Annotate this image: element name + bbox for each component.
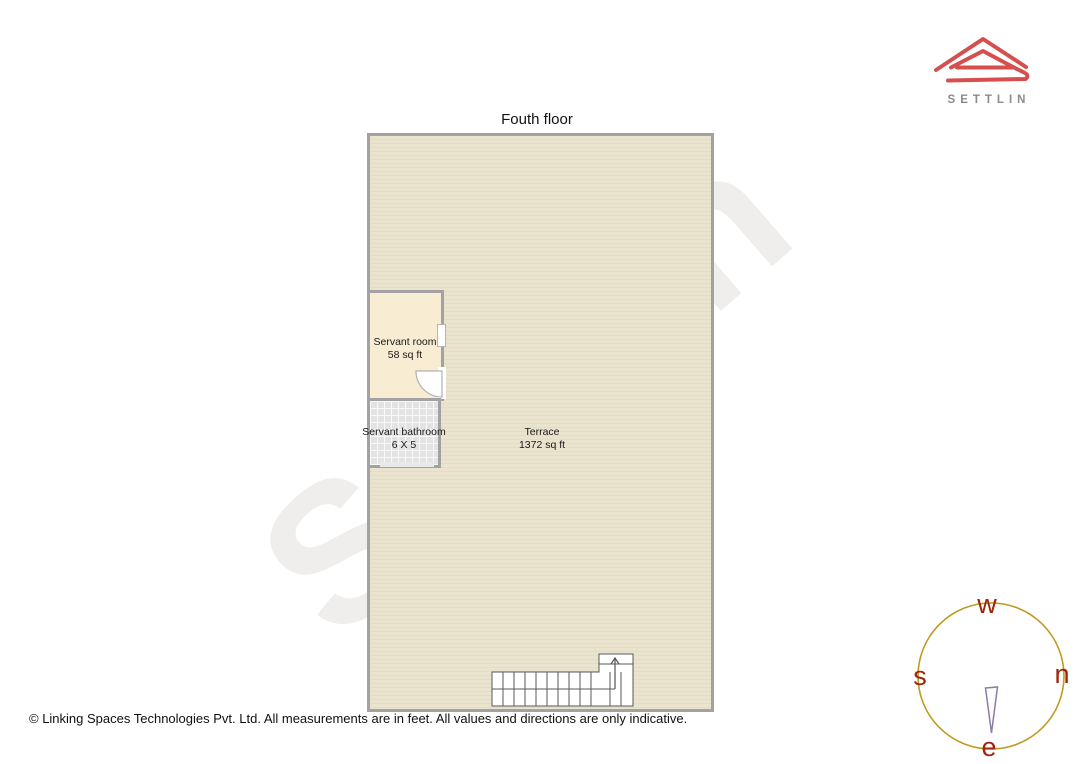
copyright-disclaimer: © Linking Spaces Technologies Pvt. Ltd. … bbox=[29, 711, 687, 726]
compass-needle bbox=[986, 687, 998, 733]
compass-icon: w s n e bbox=[905, 588, 1080, 764]
compass-letter-top: w bbox=[976, 589, 997, 619]
window-icon bbox=[437, 324, 446, 347]
servant-bathroom-outline bbox=[367, 398, 441, 468]
compass-letter-right: n bbox=[1054, 659, 1069, 689]
compass-letter-bottom: e bbox=[981, 732, 996, 762]
stairs-up-icon bbox=[490, 652, 636, 708]
floor-plan-page: Settlin SETTLIN Fouth floor Servant room… bbox=[0, 0, 1080, 764]
brand-name: SETTLIN bbox=[933, 94, 1045, 106]
compass-letter-left: s bbox=[913, 661, 927, 691]
settlin-roof-icon bbox=[928, 32, 1038, 87]
bathroom-threshold bbox=[380, 462, 434, 467]
floor-title: Fouth floor bbox=[420, 111, 654, 128]
